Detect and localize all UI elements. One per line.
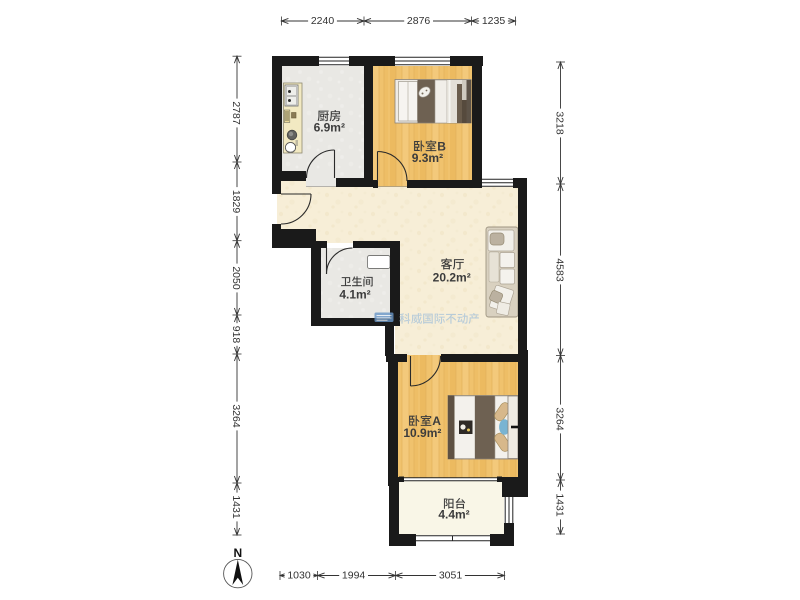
svg-text:1431: 1431 — [554, 493, 566, 517]
svg-text:2876: 2876 — [407, 15, 431, 27]
svg-text:4.1m²: 4.1m² — [339, 288, 370, 302]
svg-text:1235: 1235 — [482, 15, 506, 27]
svg-text:1030: 1030 — [287, 570, 311, 582]
svg-text:3264: 3264 — [230, 404, 242, 428]
svg-text:1994: 1994 — [342, 570, 366, 582]
svg-text:20.2m²: 20.2m² — [433, 270, 471, 284]
svg-text:4583: 4583 — [554, 258, 566, 282]
svg-text:6.9m²: 6.9m² — [314, 121, 345, 135]
svg-text:9.3m²: 9.3m² — [412, 151, 443, 165]
svg-text:4.4m²: 4.4m² — [438, 508, 469, 522]
svg-text:3051: 3051 — [439, 570, 463, 582]
svg-text:3218: 3218 — [554, 111, 566, 135]
svg-text:918: 918 — [230, 326, 242, 344]
svg-text:1431: 1431 — [230, 495, 242, 519]
svg-text:2240: 2240 — [311, 15, 335, 27]
svg-text:3264: 3264 — [554, 407, 566, 431]
svg-text:2787: 2787 — [230, 101, 242, 125]
svg-text:1829: 1829 — [230, 190, 242, 214]
svg-text:2050: 2050 — [230, 266, 242, 290]
svg-text:10.9m²: 10.9m² — [403, 426, 441, 440]
svg-text:N: N — [233, 546, 242, 560]
